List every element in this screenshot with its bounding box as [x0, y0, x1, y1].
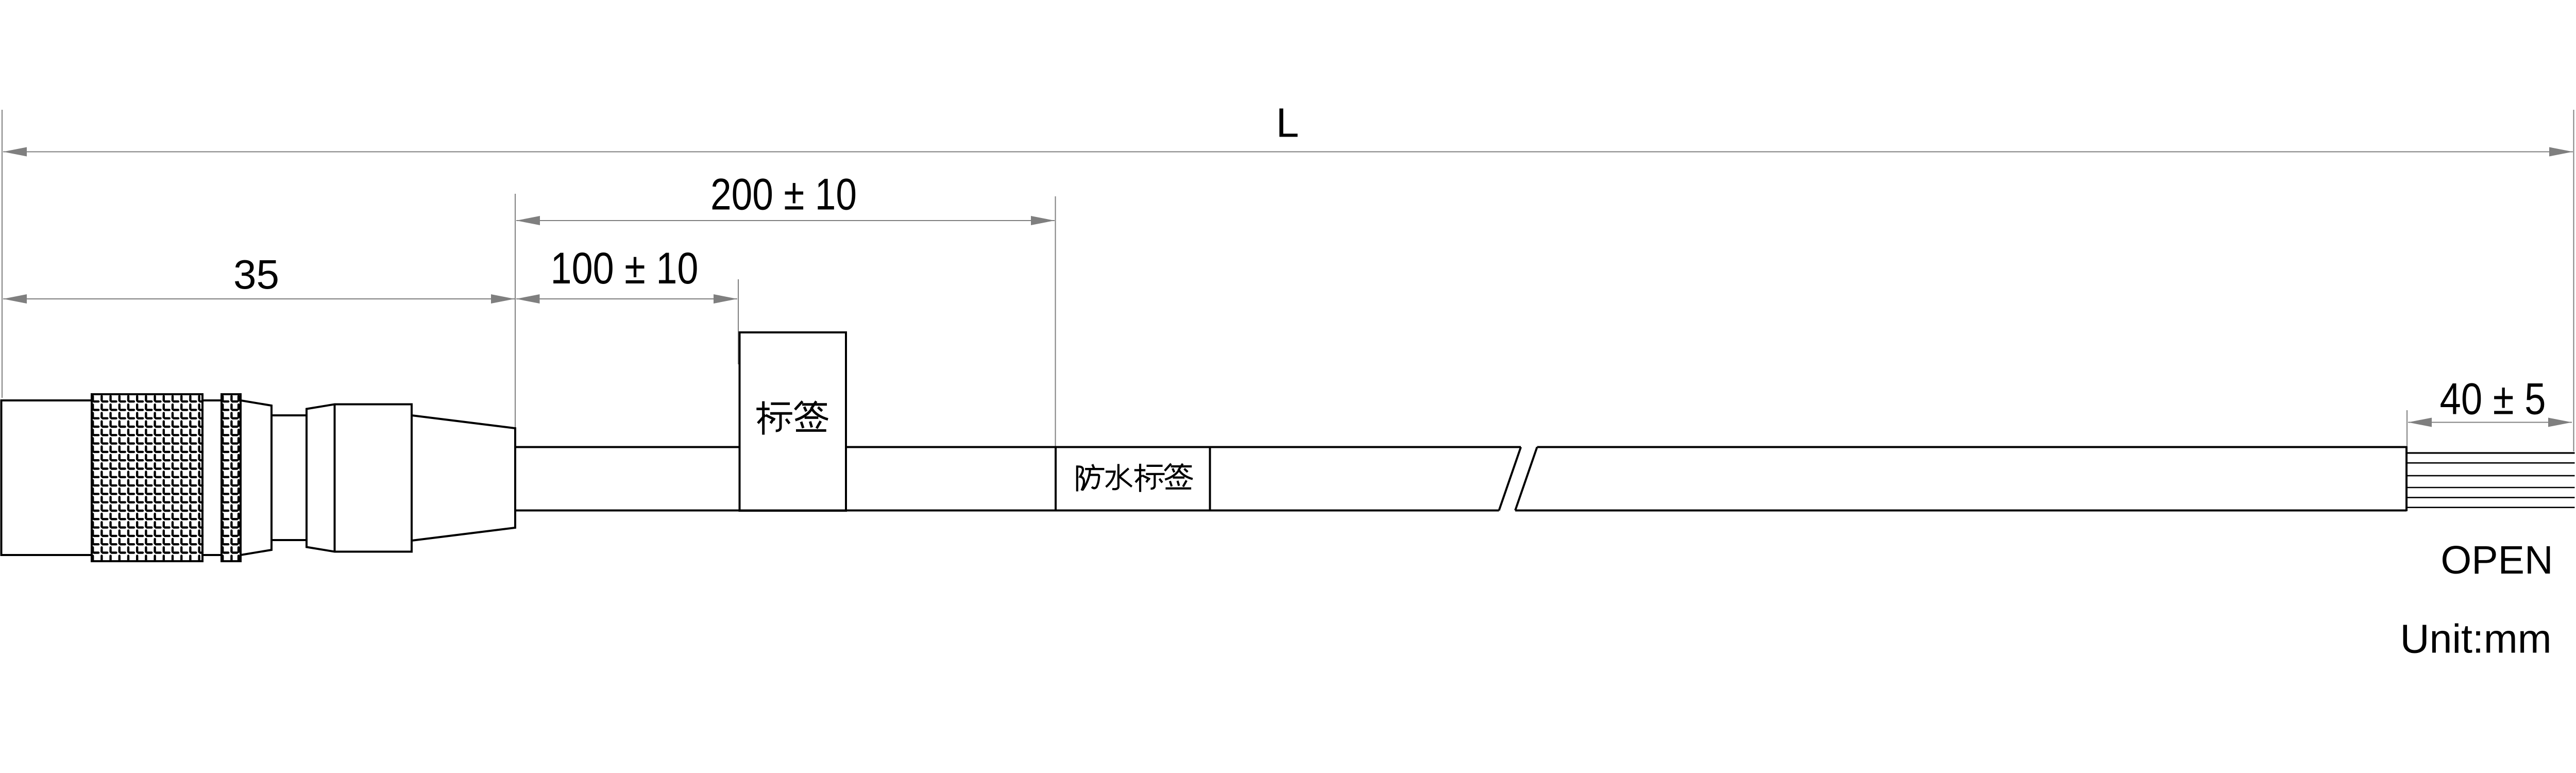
- svg-text:Unit:mm: Unit:mm: [2400, 616, 2551, 662]
- svg-text:35: 35: [233, 251, 279, 297]
- svg-text:200 ± 10: 200 ± 10: [710, 170, 857, 220]
- svg-text:40 ± 5: 40 ± 5: [2440, 375, 2546, 424]
- svg-text:100 ± 10: 100 ± 10: [551, 244, 699, 293]
- svg-text:OPEN: OPEN: [2441, 538, 2553, 582]
- svg-text:L: L: [1276, 100, 1299, 146]
